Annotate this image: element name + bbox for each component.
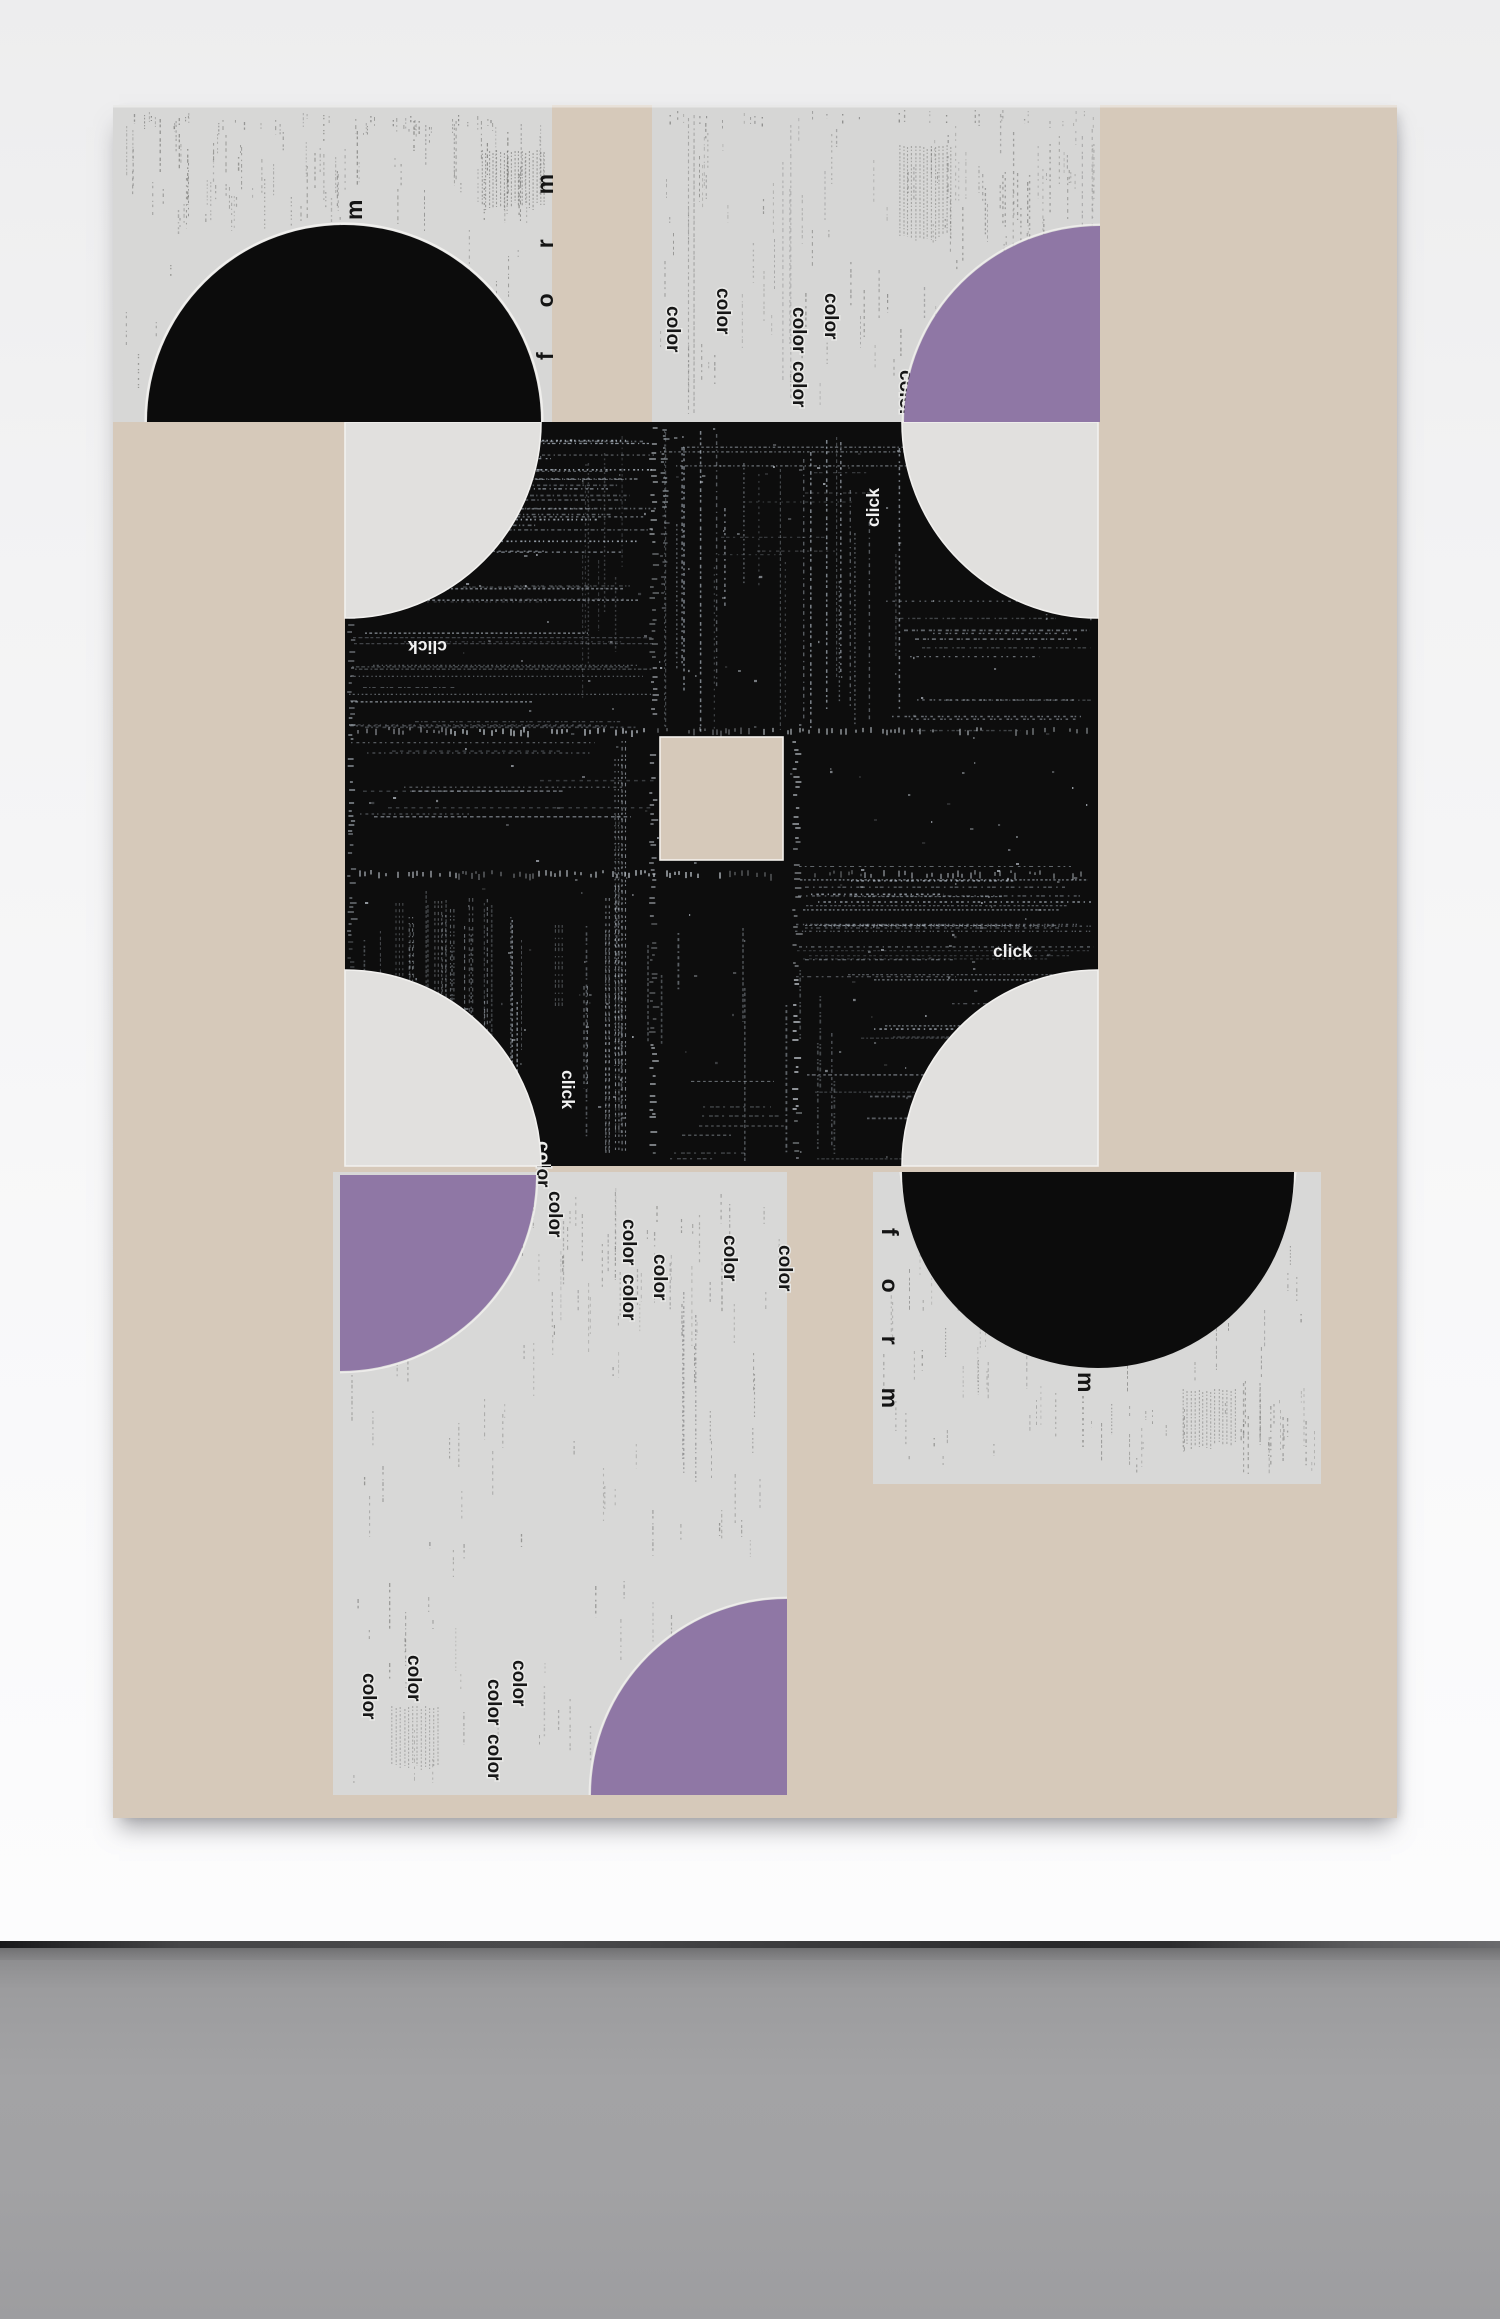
svg-text:form: form <box>532 129 558 360</box>
svg-text:click: click <box>863 488 883 527</box>
svg-text:color: color <box>788 307 809 354</box>
svg-text:click: click <box>993 941 1032 961</box>
svg-text:color: color <box>403 1655 424 1702</box>
svg-text:color: color <box>618 1274 639 1321</box>
svg-text:color: color <box>483 1734 504 1781</box>
svg-text:color: color <box>712 288 733 335</box>
svg-text:color: color <box>508 1660 529 1707</box>
svg-text:m: m <box>341 200 367 220</box>
svg-text:color: color <box>820 293 841 340</box>
svg-text:m: m <box>1073 1372 1099 1392</box>
svg-text:color: color <box>649 1254 670 1301</box>
svg-text:color: color <box>774 1245 795 1292</box>
svg-text:form: form <box>877 1228 903 1451</box>
svg-text:click: click <box>408 637 447 657</box>
svg-text:color: color <box>788 361 809 408</box>
svg-text:color: color <box>544 1191 565 1238</box>
svg-text:click: click <box>558 1070 578 1109</box>
svg-text:color: color <box>358 1673 379 1720</box>
svg-text:color: color <box>483 1679 504 1726</box>
svg-text:color: color <box>618 1219 639 1266</box>
svg-text:color: color <box>662 306 683 353</box>
svg-text:color: color <box>719 1235 740 1282</box>
